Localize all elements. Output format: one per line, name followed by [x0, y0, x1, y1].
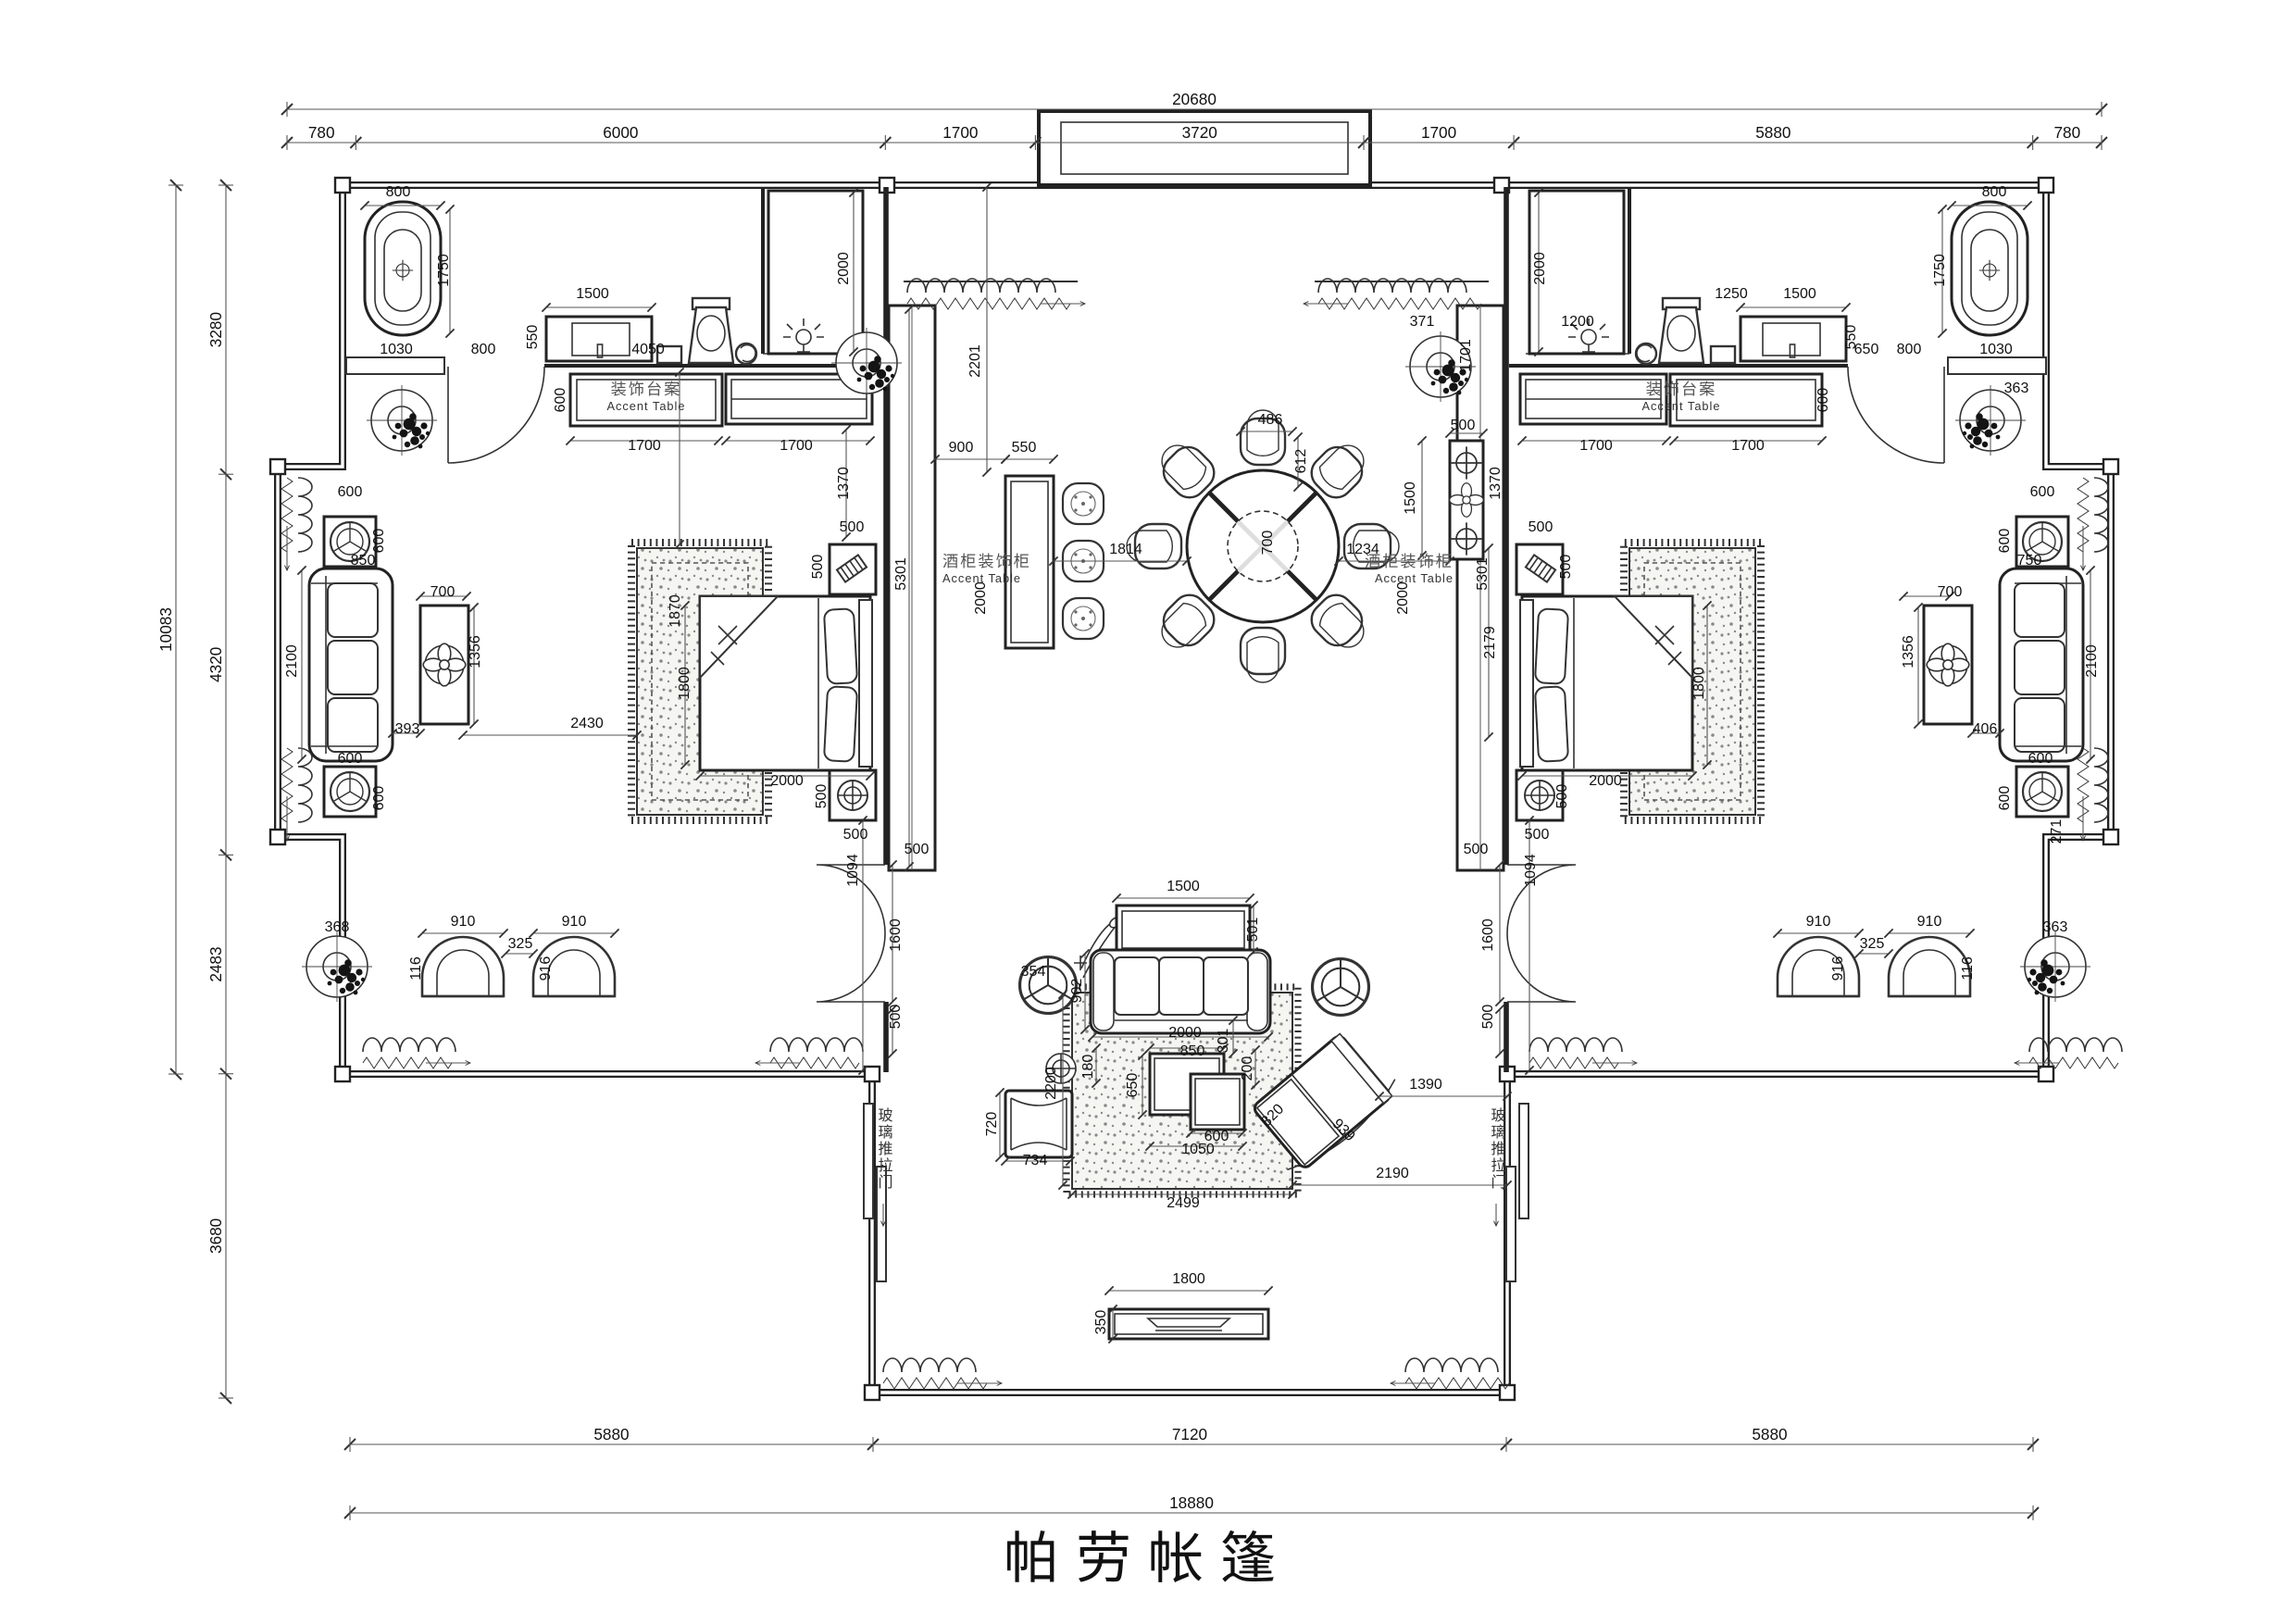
svg-text:700: 700: [1938, 584, 1963, 600]
svg-text:1200: 1200: [1561, 314, 1594, 330]
svg-text:780: 780: [2053, 123, 2080, 142]
folding-chair: [1005, 1091, 1072, 1157]
svg-text:1094: 1094: [845, 854, 861, 887]
svg-text:500: 500: [1451, 418, 1476, 433]
svg-text:6000: 6000: [603, 123, 638, 142]
drawing-title: 帕劳帐篷: [1004, 1528, 1292, 1590]
wine-cabinet-right: 酒柜装饰柜Accent Table: [1365, 552, 1454, 585]
svg-text:406: 406: [1973, 721, 1998, 737]
svg-text:2100: 2100: [284, 644, 300, 678]
svg-text:2179: 2179: [1482, 626, 1498, 659]
svg-text:2201: 2201: [967, 344, 983, 378]
svg-text:5880: 5880: [1752, 1425, 1787, 1443]
svg-text:271: 271: [2049, 819, 2065, 844]
svg-text:1800: 1800: [1691, 667, 1707, 700]
svg-text:600: 600: [1997, 786, 2013, 811]
svg-text:910: 910: [451, 914, 476, 930]
svg-text:1800: 1800: [1172, 1271, 1205, 1287]
svg-text:550: 550: [1012, 440, 1037, 456]
round-side-table-right: [1313, 959, 1369, 1016]
svg-text:2100: 2100: [2084, 644, 2100, 678]
svg-text:2200: 2200: [1043, 1067, 1059, 1100]
svg-text:2000: 2000: [973, 581, 989, 615]
svg-text:910: 910: [1806, 914, 1831, 930]
svg-text:600: 600: [371, 529, 387, 554]
svg-text:酒柜装饰柜: 酒柜装饰柜: [1365, 552, 1454, 570]
svg-text:2000: 2000: [1168, 1025, 1202, 1041]
dim-chain: 588071205880: [344, 1425, 2039, 1452]
svg-text:装饰台案: 装饰台案: [1646, 380, 1717, 398]
svg-text:2430: 2430: [570, 716, 604, 731]
svg-text:1500: 1500: [1783, 286, 1816, 302]
svg-text:5301: 5301: [893, 557, 909, 591]
svg-text:1700: 1700: [780, 438, 813, 454]
svg-text:1870: 1870: [668, 594, 683, 628]
svg-text:916: 916: [1830, 956, 1846, 981]
svg-text:910: 910: [562, 914, 587, 930]
sofa-console: [1117, 906, 1250, 954]
accent-table-left: 装饰台案Accent Table: [606, 380, 685, 413]
accent-table-right: 装饰台案Accent Table: [1641, 380, 1720, 413]
svg-text:1700: 1700: [942, 123, 978, 142]
svg-text:3680: 3680: [206, 1218, 225, 1254]
svg-text:1050: 1050: [1181, 1142, 1215, 1157]
svg-text:装饰台案: 装饰台案: [611, 380, 682, 398]
svg-text:500: 500: [1529, 519, 1554, 535]
svg-text:1030: 1030: [380, 342, 413, 357]
svg-text:1500: 1500: [576, 286, 609, 302]
svg-text:2000: 2000: [836, 252, 852, 285]
svg-text:354: 354: [1021, 964, 1046, 980]
svg-text:2000: 2000: [1532, 252, 1548, 285]
svg-text:734: 734: [1023, 1153, 1048, 1168]
svg-text:500: 500: [840, 519, 865, 535]
svg-text:1500: 1500: [1167, 879, 1200, 894]
svg-text:902: 902: [1069, 979, 1085, 1004]
svg-text:1370: 1370: [1488, 467, 1504, 500]
svg-text:600: 600: [553, 388, 568, 413]
svg-text:7120: 7120: [1172, 1425, 1207, 1443]
svg-text:500: 500: [1558, 555, 1574, 580]
deck-console: [1109, 1309, 1268, 1339]
svg-text:850: 850: [351, 553, 376, 568]
svg-text:116: 116: [1960, 956, 1976, 981]
svg-text:1356: 1356: [1901, 635, 1916, 668]
svg-text:1700: 1700: [1731, 438, 1765, 454]
svg-text:371: 371: [1410, 314, 1435, 330]
svg-text:910: 910: [1917, 914, 1942, 930]
svg-text:363: 363: [2004, 381, 2029, 396]
svg-text:1800: 1800: [677, 667, 693, 700]
svg-text:3280: 3280: [206, 312, 225, 347]
svg-text:2000: 2000: [1589, 773, 1622, 789]
svg-text:1356: 1356: [468, 635, 483, 668]
svg-text:200: 200: [1240, 1056, 1255, 1081]
svg-text:800: 800: [1982, 184, 2007, 200]
svg-text:180: 180: [1080, 1055, 1096, 1080]
svg-text:650: 650: [1125, 1073, 1141, 1098]
svg-text:10083: 10083: [156, 607, 175, 652]
svg-text:500: 500: [843, 827, 868, 843]
svg-text:1030: 1030: [1979, 342, 2013, 357]
svg-text:350: 350: [1093, 1310, 1109, 1335]
svg-text:750: 750: [2017, 553, 2042, 568]
floor-plan-canvas: 2068078060001700372017005880780100833280…: [0, 0, 2296, 1624]
svg-text:116: 116: [408, 956, 424, 981]
decor-counter-right: [1450, 441, 1483, 559]
svg-text:1250: 1250: [1715, 286, 1748, 302]
svg-text:2000: 2000: [770, 773, 804, 789]
glass-door-right: 玻璃推拉门: [1489, 1107, 1506, 1191]
svg-text:363: 363: [2043, 919, 2068, 935]
svg-text:酒柜装饰柜: 酒柜装饰柜: [942, 552, 1031, 570]
svg-text:501: 501: [1245, 918, 1261, 943]
svg-text:1094: 1094: [1523, 854, 1539, 887]
svg-text:4050: 4050: [631, 342, 665, 357]
svg-text:500: 500: [888, 1005, 904, 1030]
svg-text:900: 900: [949, 440, 974, 456]
svg-text:2483: 2483: [206, 946, 225, 981]
svg-text:3720: 3720: [1182, 123, 1217, 142]
svg-text:1700: 1700: [1421, 123, 1456, 142]
svg-text:600: 600: [338, 484, 363, 500]
svg-text:1814: 1814: [1109, 542, 1142, 557]
svg-text:368: 368: [325, 919, 350, 935]
svg-text:1700: 1700: [628, 438, 661, 454]
svg-text:5880: 5880: [593, 1425, 629, 1443]
svg-text:1701: 1701: [1458, 339, 1474, 372]
svg-text:612: 612: [1293, 449, 1309, 474]
floor-plan-page: 2068078060001700372017005880780100833280…: [0, 0, 2296, 1624]
svg-text:2190: 2190: [1376, 1166, 1409, 1181]
svg-text:Accent Table: Accent Table: [1641, 399, 1720, 413]
svg-text:301: 301: [1216, 1029, 1231, 1054]
svg-text:20680: 20680: [1172, 90, 1217, 108]
svg-text:4320: 4320: [206, 647, 225, 682]
dim-chain: 3280432024833680: [206, 180, 233, 1404]
svg-text:325: 325: [1860, 936, 1885, 952]
svg-text:1600: 1600: [888, 918, 904, 952]
svg-text:2499: 2499: [1167, 1195, 1200, 1211]
dim-chain: 18880: [344, 1493, 2039, 1520]
svg-text:700: 700: [430, 584, 455, 600]
svg-text:Accent Table: Accent Table: [606, 399, 685, 413]
svg-text:500: 500: [905, 842, 930, 857]
svg-text:500: 500: [1464, 842, 1489, 857]
svg-text:393: 393: [395, 721, 420, 737]
svg-text:500: 500: [810, 555, 826, 580]
wine-cabinet-left: 酒柜装饰柜Accent Table: [942, 552, 1031, 585]
svg-text:600: 600: [2030, 484, 2055, 500]
svg-text:486: 486: [1258, 412, 1283, 428]
svg-text:550: 550: [1843, 325, 1859, 350]
svg-text:850: 850: [1180, 1043, 1205, 1059]
svg-text:800: 800: [471, 342, 496, 357]
svg-text:1390: 1390: [1409, 1077, 1442, 1093]
svg-text:916: 916: [538, 956, 554, 981]
svg-text:Accent Table: Accent Table: [1375, 571, 1454, 585]
svg-text:600: 600: [1997, 529, 2013, 554]
svg-text:800: 800: [386, 184, 411, 200]
svg-text:1500: 1500: [1403, 481, 1418, 515]
svg-text:1370: 1370: [836, 467, 852, 500]
svg-text:800: 800: [1897, 342, 1922, 357]
svg-text:2000: 2000: [1395, 581, 1411, 615]
svg-text:325: 325: [508, 936, 533, 952]
svg-text:500: 500: [1554, 784, 1570, 809]
svg-text:600: 600: [2028, 751, 2053, 767]
svg-text:Accent Table: Accent Table: [942, 571, 1021, 585]
glass-door-left: 玻璃推拉门: [876, 1107, 893, 1191]
svg-text:600: 600: [338, 751, 363, 767]
svg-text:500: 500: [814, 784, 830, 809]
svg-text:1600: 1600: [1480, 918, 1496, 952]
svg-text:1700: 1700: [1579, 438, 1613, 454]
svg-text:600: 600: [371, 786, 387, 811]
svg-text:780: 780: [308, 123, 335, 142]
svg-text:700: 700: [1260, 531, 1276, 556]
svg-text:720: 720: [984, 1112, 1000, 1137]
svg-text:500: 500: [1525, 827, 1550, 843]
dim-chain: 10083: [156, 180, 183, 1080]
svg-text:5301: 5301: [1475, 557, 1491, 591]
svg-text:1750: 1750: [436, 254, 452, 287]
svg-text:5880: 5880: [1755, 123, 1791, 142]
svg-text:1750: 1750: [1932, 254, 1948, 287]
svg-text:18880: 18880: [1169, 1493, 1214, 1512]
svg-text:500: 500: [1480, 1005, 1496, 1030]
svg-text:550: 550: [525, 325, 541, 350]
svg-text:600: 600: [1816, 388, 1831, 413]
living-sofa: [1091, 950, 1270, 1033]
